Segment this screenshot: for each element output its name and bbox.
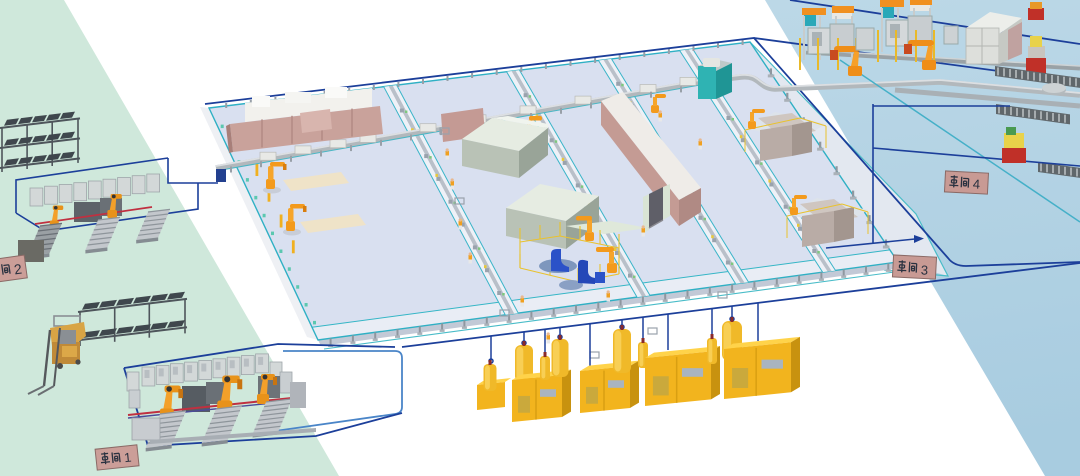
svg-text:4: 4	[973, 176, 981, 191]
svg-text:3: 3	[920, 262, 928, 277]
